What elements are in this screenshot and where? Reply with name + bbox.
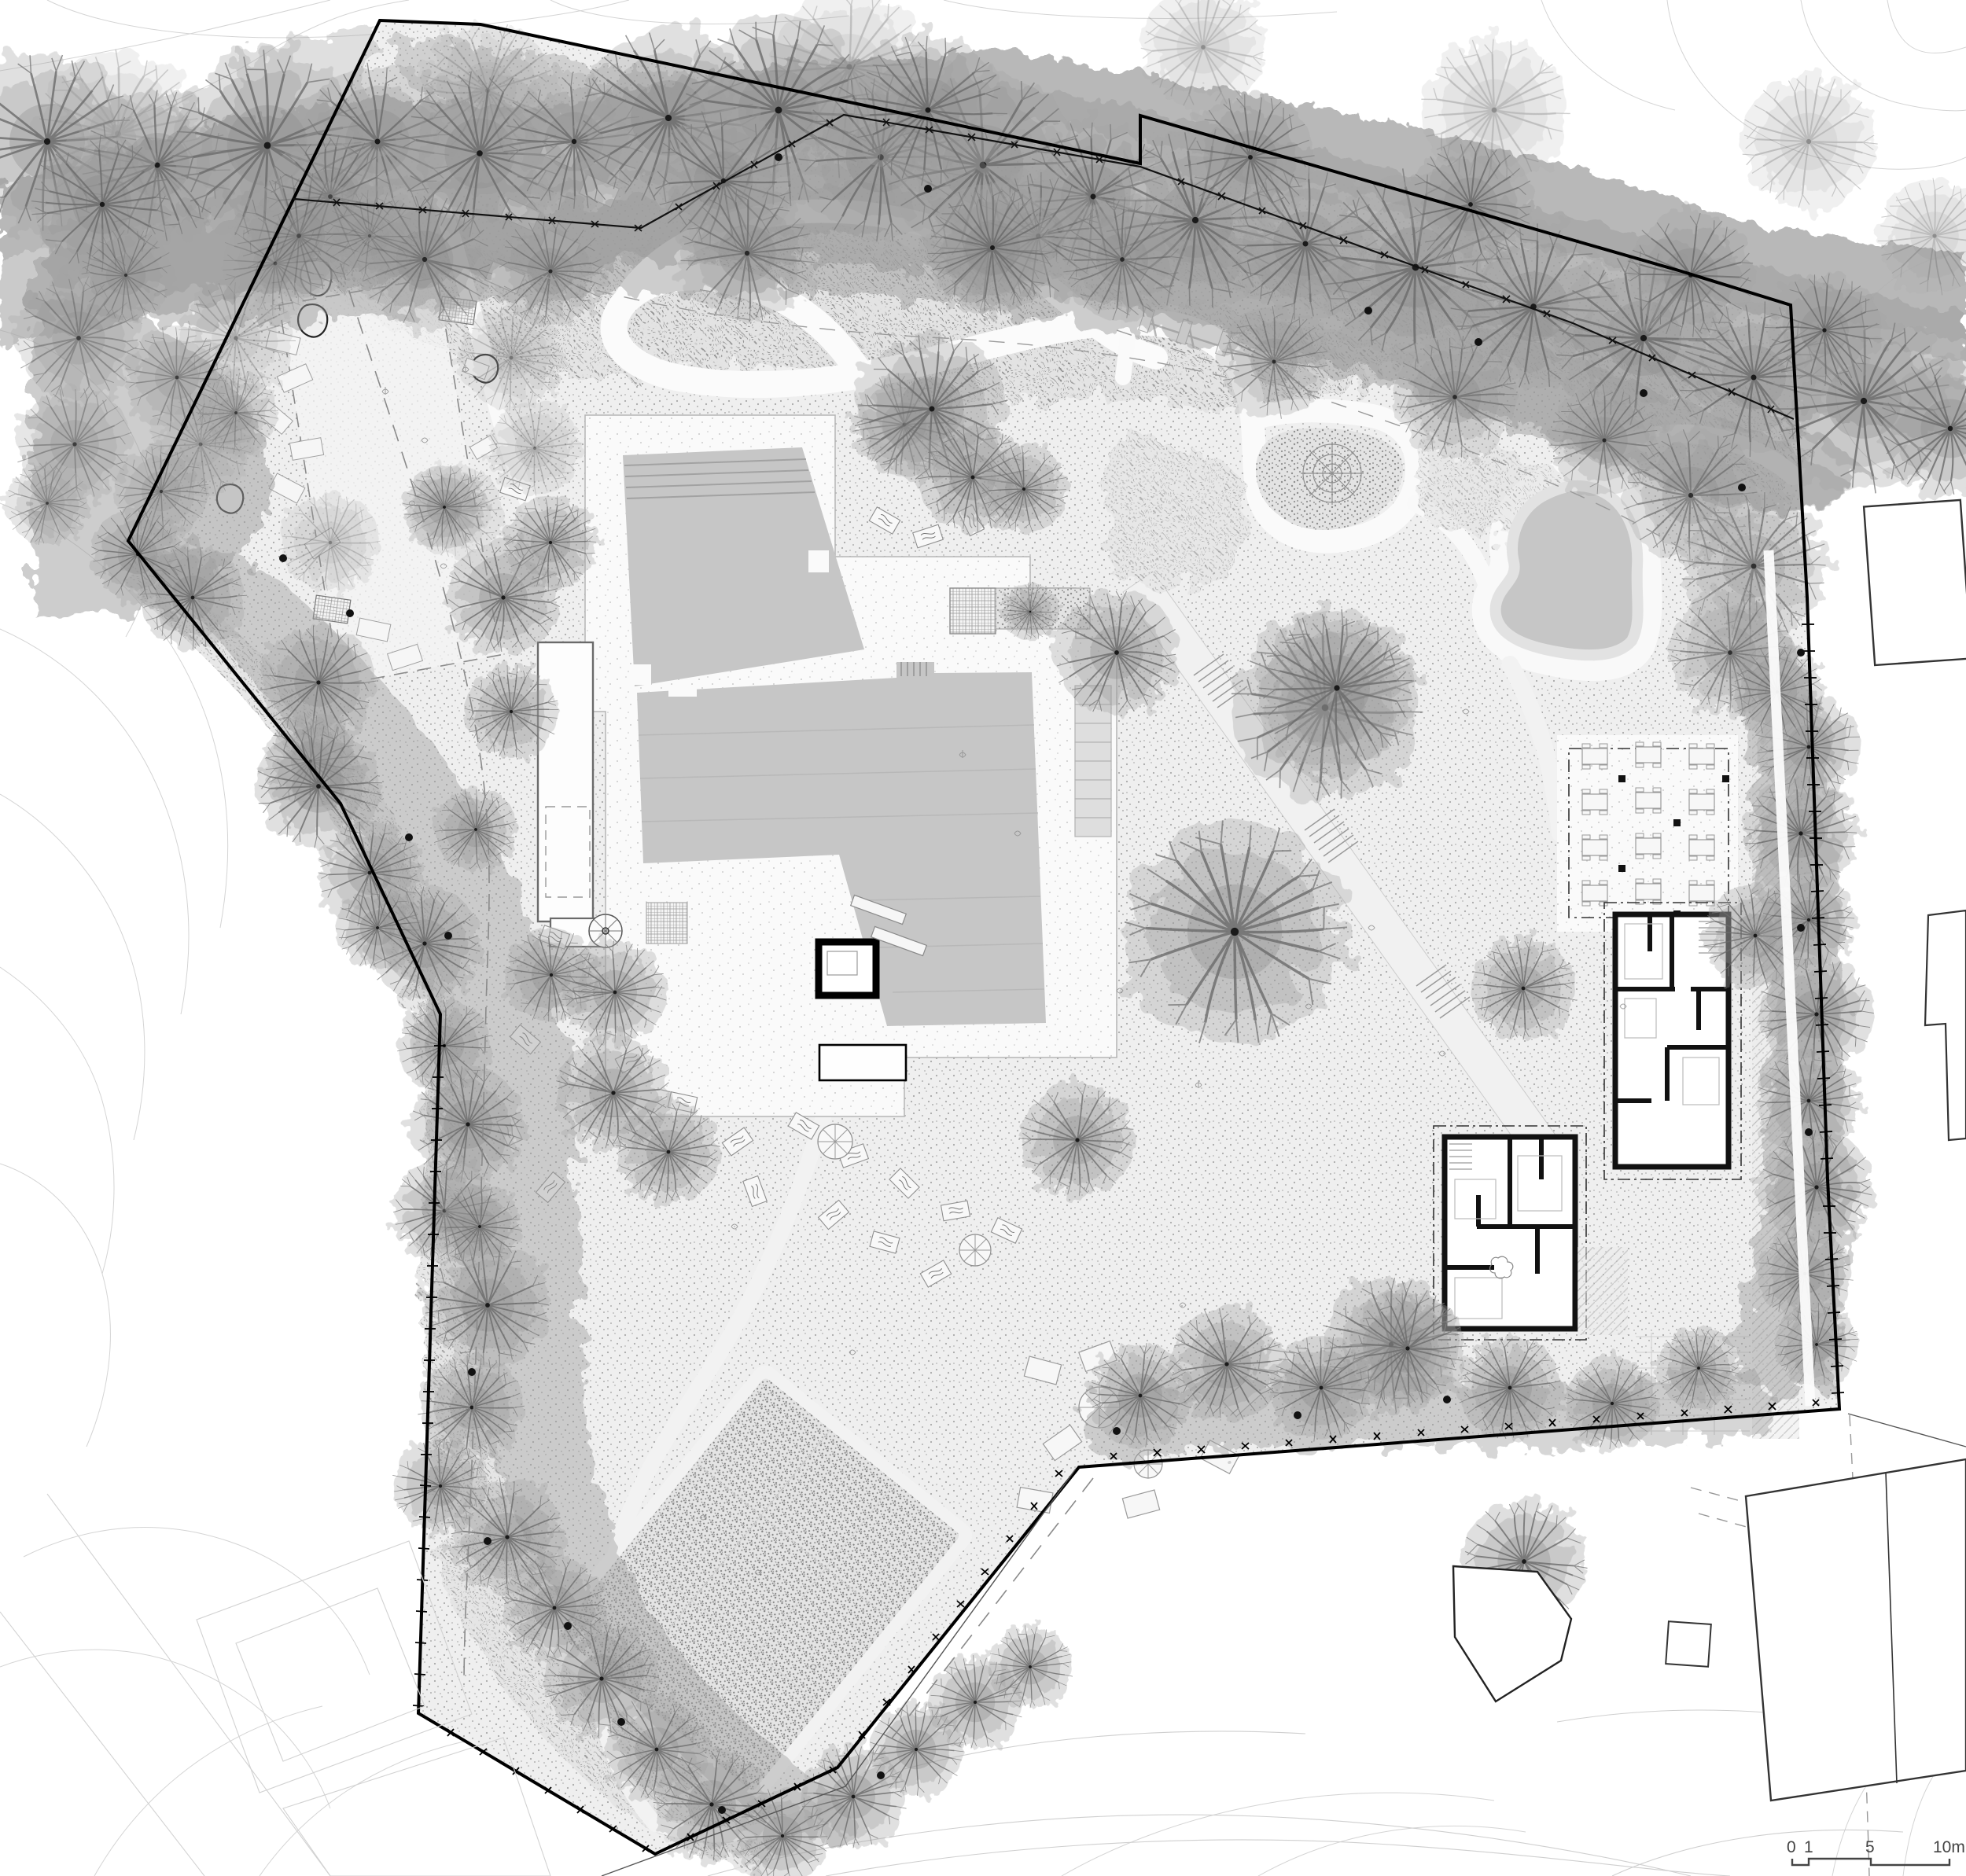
svg-text:0: 0 [1787,1838,1796,1856]
svg-text:1: 1 [1804,1838,1813,1856]
svg-text:5: 5 [1865,1838,1875,1856]
svg-text:10m: 10m [1933,1838,1965,1856]
